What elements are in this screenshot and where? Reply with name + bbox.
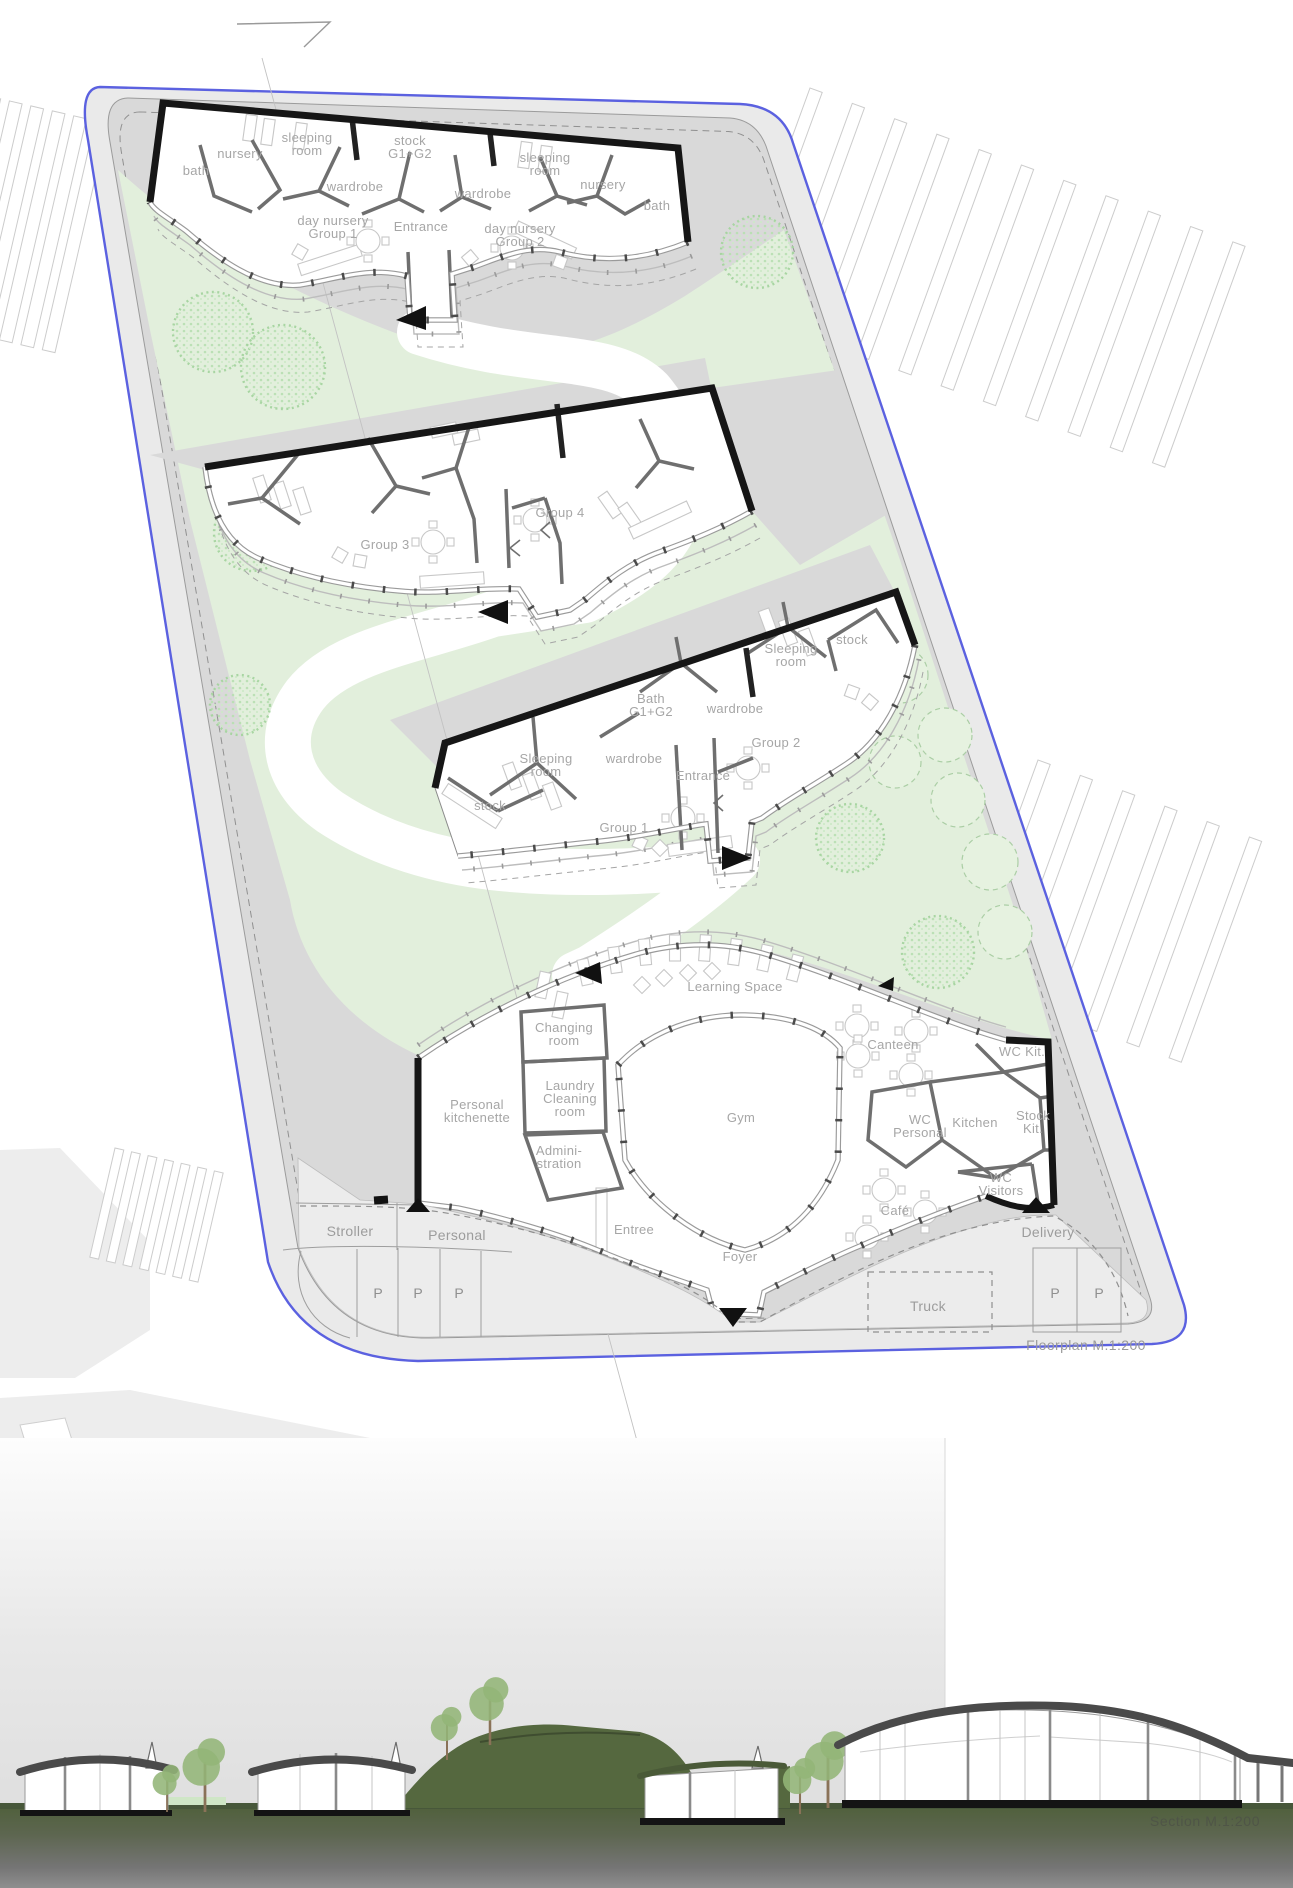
tree-icon bbox=[241, 325, 325, 409]
section-drawing: Section M.1:200 bbox=[0, 1438, 1293, 1888]
tree-icon bbox=[978, 905, 1032, 959]
section-cut-arrow-top bbox=[237, 22, 330, 47]
tree-icon bbox=[918, 708, 972, 762]
room-label-cafe: Café bbox=[881, 1203, 910, 1218]
zone-label-truck: Truck bbox=[910, 1298, 947, 1314]
room-label-administration: Admini-stration bbox=[536, 1143, 582, 1171]
room-label-kitchen: Kitchen bbox=[952, 1115, 997, 1130]
room-label-wardrobe: wardrobe bbox=[326, 179, 384, 194]
tree-icon bbox=[721, 216, 793, 288]
tree-icon bbox=[816, 804, 884, 872]
tree-icon bbox=[902, 916, 974, 988]
stall-label-p: P bbox=[1094, 1285, 1103, 1301]
zone-label-personal: Personal bbox=[428, 1227, 486, 1243]
room-label-wardrobe: wardrobe bbox=[706, 701, 764, 716]
stall-label-p: P bbox=[1050, 1285, 1059, 1301]
section-building-main bbox=[838, 1705, 1293, 1808]
tree-icon bbox=[962, 834, 1018, 890]
room-label-nursery: nursery bbox=[580, 177, 626, 192]
room-label-wardrobe: wardrobe bbox=[454, 186, 512, 201]
room-label-entree: Entree bbox=[614, 1222, 654, 1237]
room-label-group4: Group 4 bbox=[535, 505, 584, 520]
room-label-group2: Group 2 bbox=[751, 735, 800, 750]
zone-label-delivery: Delivery bbox=[1022, 1224, 1075, 1240]
room-label-stock: stock bbox=[474, 798, 506, 813]
floorplan-svg: bath nursery sleepingroom stockG1+G2 war… bbox=[0, 0, 1293, 1888]
stall-label-p: P bbox=[454, 1285, 463, 1301]
stall-label-p: P bbox=[413, 1285, 422, 1301]
room-label-group1: Group 1 bbox=[599, 820, 648, 835]
tree-icon bbox=[210, 675, 270, 735]
windbreak bbox=[596, 1188, 607, 1254]
room-label-bath: bath bbox=[183, 163, 210, 178]
room-label-stock: stockG1+G2 bbox=[388, 133, 432, 161]
kindergarten-plan-sheet: bath nursery sleepingroom stockG1+G2 war… bbox=[0, 0, 1293, 1888]
room-label-group3: Group 3 bbox=[360, 537, 409, 552]
floorplan-scale-label: Floorplan M.1:200 bbox=[1026, 1337, 1146, 1353]
room-label-gym: Gym bbox=[727, 1110, 755, 1125]
zone-label-stroller: Stroller bbox=[327, 1223, 374, 1239]
room-label-wardrobe: wardrobe bbox=[605, 751, 663, 766]
stall-label-p: P bbox=[373, 1285, 382, 1301]
room-label-personal-kitchenette: Personalkitchenette bbox=[444, 1097, 510, 1125]
room-label-entrance: Entrance bbox=[394, 219, 448, 234]
room-label-bath: bath bbox=[644, 198, 671, 213]
tree-icon bbox=[931, 773, 985, 827]
room-label-nursery: nursery bbox=[217, 146, 263, 161]
room-label-canteen: Canteen bbox=[867, 1037, 918, 1052]
room-label-learning-space: Learning Space bbox=[687, 979, 782, 994]
section-scale-label: Section M.1:200 bbox=[1150, 1813, 1260, 1829]
room-label-foyer: Foyer bbox=[723, 1249, 758, 1264]
room-label-entrance: Entrance bbox=[676, 768, 730, 783]
tree-icon bbox=[869, 736, 921, 788]
room-label-stock: stock bbox=[836, 632, 868, 647]
room-label-wc-kit: WC Kit. bbox=[999, 1044, 1045, 1059]
